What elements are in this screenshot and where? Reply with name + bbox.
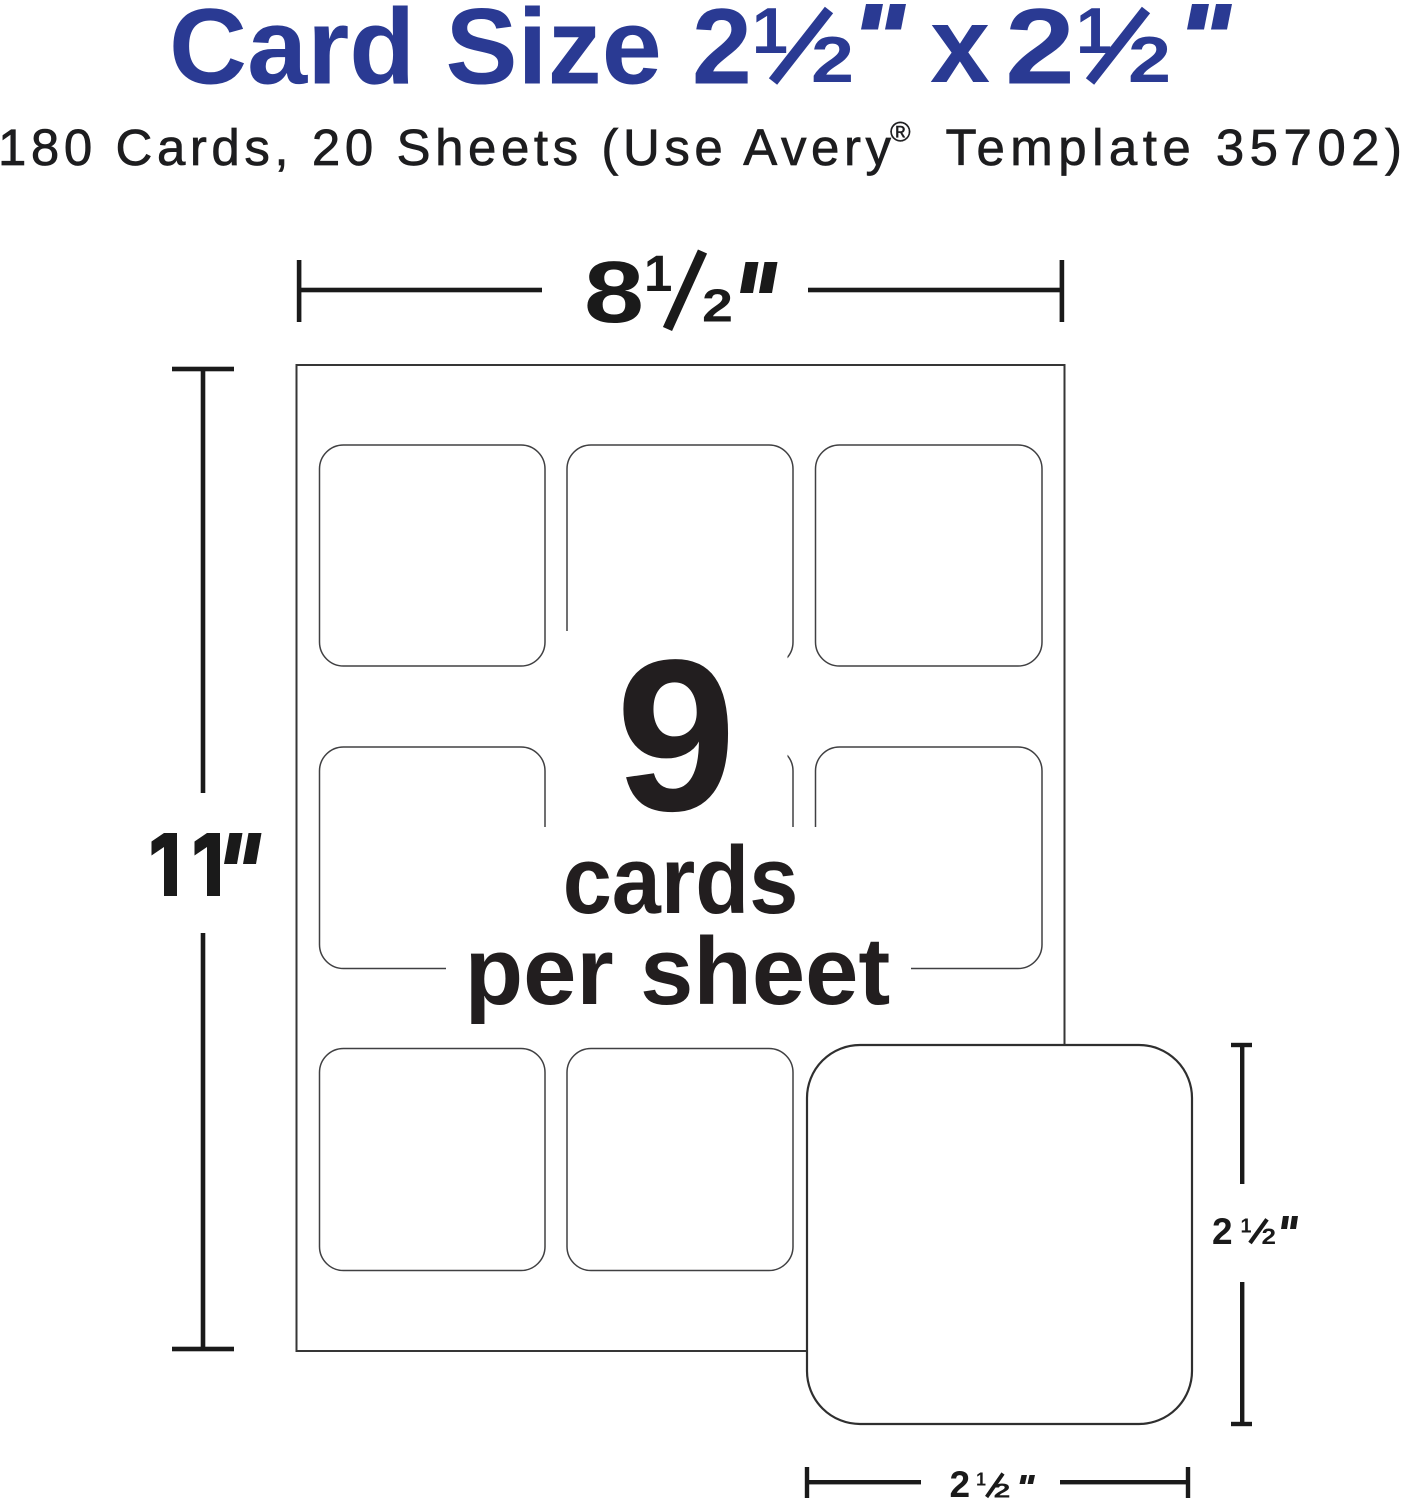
svg-text:9: 9 bbox=[616, 614, 736, 856]
svg-text:2: 2 bbox=[994, 1481, 1011, 1500]
svg-text:1: 1 bbox=[1241, 1215, 1252, 1237]
svg-text:®: ® bbox=[890, 116, 911, 147]
svg-text:2: 2 bbox=[1262, 1224, 1277, 1249]
svg-text:2: 2 bbox=[702, 280, 733, 332]
svg-text:x: x bbox=[930, 0, 990, 105]
svg-text:per sheet: per sheet bbox=[465, 918, 891, 1025]
svg-text:Card Size 2: Card Size 2 bbox=[169, 0, 752, 107]
svg-text:2: 2 bbox=[1005, 0, 1075, 107]
svg-text:2: 2 bbox=[811, 23, 854, 96]
svg-text:8: 8 bbox=[584, 244, 644, 341]
svg-text:2: 2 bbox=[950, 1464, 971, 1500]
svg-text:2: 2 bbox=[1212, 1211, 1233, 1252]
svg-text:1: 1 bbox=[752, 0, 788, 67]
svg-text:2: 2 bbox=[1128, 23, 1171, 96]
svg-text:1: 1 bbox=[976, 1470, 986, 1490]
svg-text:1: 1 bbox=[644, 245, 672, 302]
svg-text:180 Cards, 20 Sheets (Use Aver: 180 Cards, 20 Sheets (Use Avery bbox=[0, 119, 892, 176]
svg-text:Template 35702): Template 35702) bbox=[946, 119, 1402, 176]
